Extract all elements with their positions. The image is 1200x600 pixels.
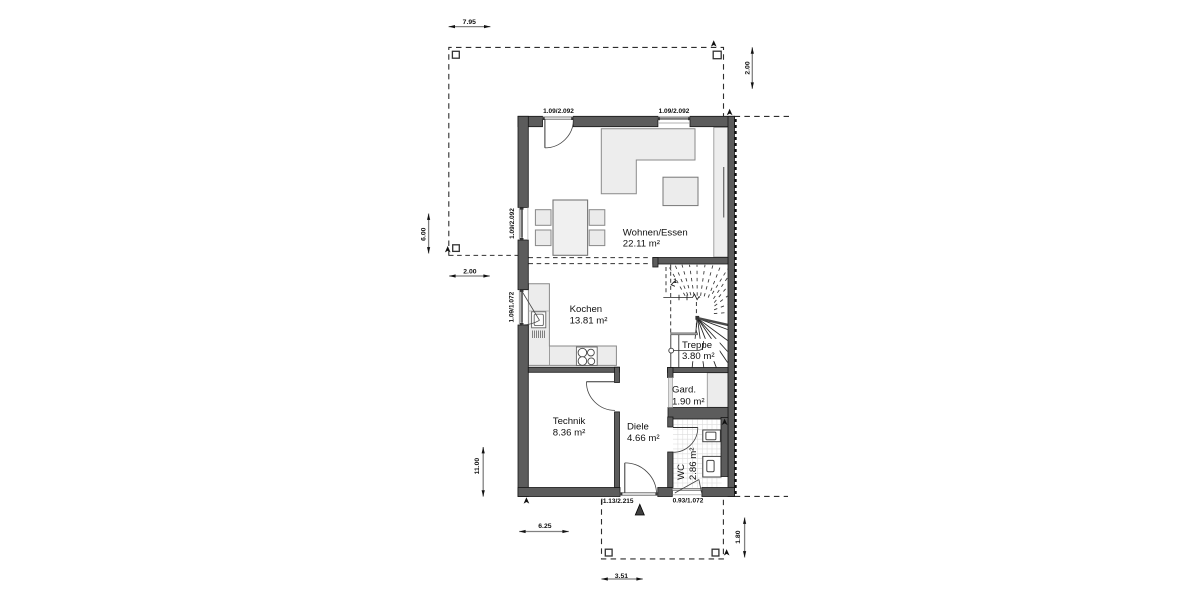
svg-text:3.80 m²: 3.80 m² [682,351,715,362]
svg-text:WC: WC [676,464,687,480]
svg-text:7.95: 7.95 [463,19,476,26]
svg-text:6.00: 6.00 [421,227,428,240]
svg-text:0.93/1.072: 0.93/1.072 [673,498,704,505]
svg-text:11.00: 11.00 [474,458,481,475]
svg-text:22.11 m²: 22.11 m² [623,239,661,250]
svg-text:1: 1 [673,278,677,285]
svg-text:6.25: 6.25 [538,523,551,530]
svg-text:1.09/2.092: 1.09/2.092 [659,108,690,115]
svg-text:Wohnen/Essen: Wohnen/Essen [623,227,688,238]
svg-text:1.80: 1.80 [735,530,742,543]
svg-text:|1.13/2.215: |1.13/2.215 [601,498,634,505]
svg-text:Kochen: Kochen [570,304,603,315]
svg-text:1.09/1.072: 1.09/1.072 [509,291,516,322]
svg-text:Technik: Technik [553,416,586,427]
svg-text:8.36 m²: 8.36 m² [553,428,586,439]
svg-text:Gard.: Gard. [672,385,696,396]
svg-text:Diele: Diele [627,422,649,433]
svg-text:1.09/2.092: 1.09/2.092 [509,208,516,239]
svg-text:1.90 m²: 1.90 m² [672,396,705,407]
svg-text:2.86 m²: 2.86 m² [688,447,699,480]
svg-text:13.81 m²: 13.81 m² [570,315,609,326]
svg-text:2.00: 2.00 [463,269,476,276]
svg-text:2.00: 2.00 [744,61,751,74]
svg-text:1.09/2.092: 1.09/2.092 [543,108,574,115]
svg-text:4.66 m²: 4.66 m² [627,433,660,444]
svg-text:Treppe: Treppe [682,340,712,351]
